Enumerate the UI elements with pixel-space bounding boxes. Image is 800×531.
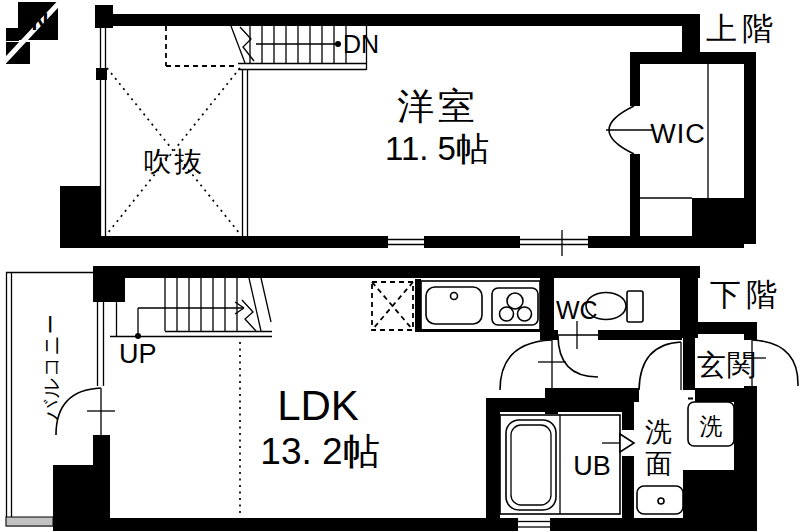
upper-windows bbox=[101, 26, 589, 256]
bedroom-size: 11. 5帖 bbox=[385, 130, 489, 167]
ldk-label: LDK bbox=[277, 382, 359, 429]
lower-floor-label: 下階 bbox=[710, 277, 782, 312]
void-label: 吹抜 bbox=[143, 146, 205, 177]
washer-label: 洗 bbox=[700, 413, 723, 439]
upper-floor: 吹抜 DN bbox=[60, 5, 778, 256]
balcony-door-arc bbox=[56, 388, 115, 435]
wc-door-arc bbox=[558, 321, 598, 377]
kitchen-door-arc bbox=[500, 340, 566, 390]
ldk-size: 13. 2帖 bbox=[260, 431, 379, 472]
north-compass-icon: N bbox=[3, 2, 59, 64]
void-area: 吹抜 bbox=[107, 26, 248, 236]
washing-machine-icon: 洗 bbox=[688, 399, 734, 447]
dn-label: DN bbox=[343, 30, 379, 58]
lower-floor: バルコニー UP bbox=[6, 266, 798, 531]
unit-bath-area: UB bbox=[486, 398, 634, 531]
stair-break-mark bbox=[242, 300, 256, 331]
balcony-edge-strip bbox=[6, 517, 53, 526]
stove-icon bbox=[492, 288, 538, 325]
bedroom-label: 洋室 bbox=[397, 86, 479, 127]
entrance-area: 玄関 bbox=[697, 340, 798, 386]
kitchen-area bbox=[372, 279, 540, 332]
refrigerator-space bbox=[372, 282, 413, 330]
wic-area: WIC bbox=[606, 64, 708, 198]
washroom-door-arc bbox=[639, 342, 681, 390]
upper-stairs: DN bbox=[231, 26, 379, 70]
balcony-label: バルコニー bbox=[40, 313, 62, 421]
floorplan-image: N bbox=[0, 0, 800, 531]
washroom-label-line1: 洗 bbox=[645, 417, 672, 447]
upper-floor-label: 上階 bbox=[706, 11, 778, 46]
entrance-label: 玄関 bbox=[697, 349, 757, 381]
up-label: UP bbox=[119, 339, 157, 369]
north-label: N bbox=[31, 8, 48, 35]
wic-label: WIC bbox=[650, 119, 705, 149]
folding-door-icon bbox=[602, 434, 634, 452]
lower-stairs: UP bbox=[110, 278, 272, 369]
kitchen-sink-icon bbox=[426, 287, 482, 324]
bath-label: UB bbox=[573, 451, 611, 481]
washroom-label-line2: 面 bbox=[645, 449, 672, 479]
bath-window bbox=[518, 518, 550, 531]
bathtub-icon bbox=[506, 420, 556, 510]
wc-label: WC bbox=[556, 296, 598, 324]
vanity-sink-icon bbox=[637, 486, 683, 514]
